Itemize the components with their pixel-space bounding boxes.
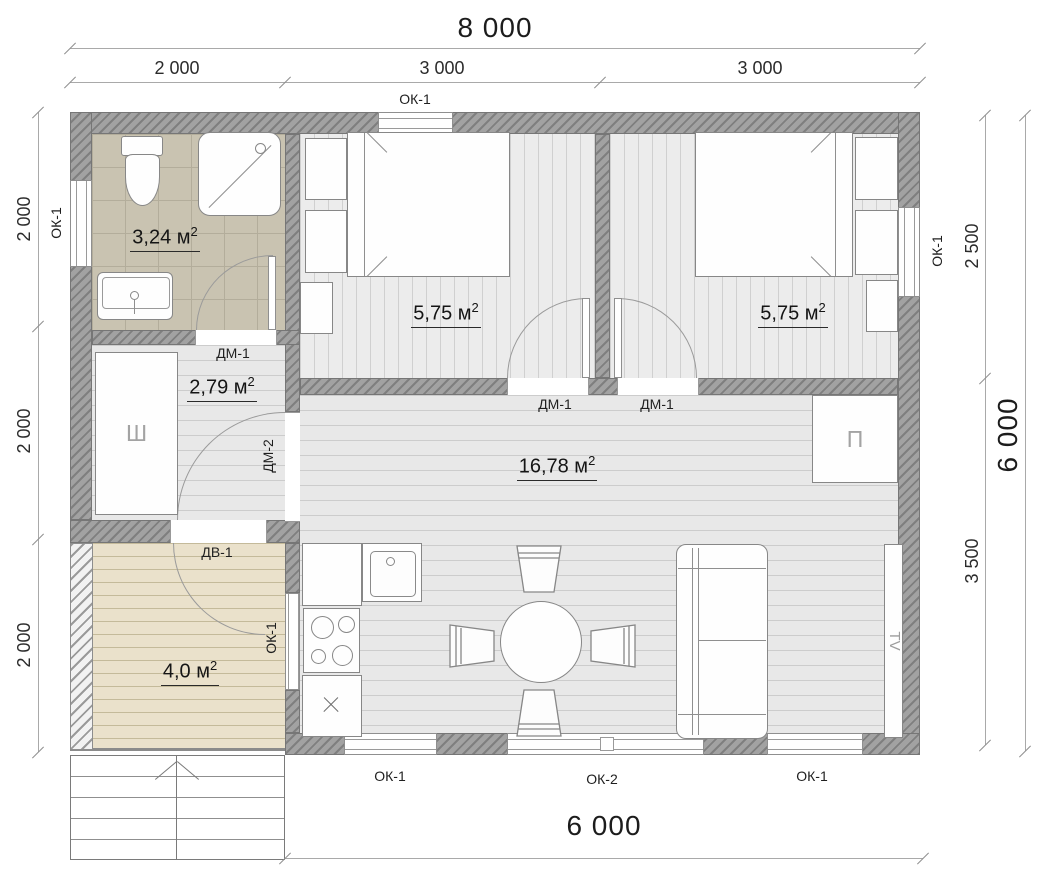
wardrobe-label: Ш [126, 420, 147, 447]
floor-plan: Ш П TV 3,24 м2 2,79 м2 5,75 м2 [0, 0, 1047, 881]
bed-1 [347, 132, 510, 277]
window-top [378, 112, 453, 134]
door-entrance-tag: ДВ-1 [187, 544, 247, 560]
bed-2 [695, 132, 853, 277]
kitchen-counter [302, 543, 362, 606]
bed-1-headboard-line [364, 133, 365, 276]
dresser-1 [300, 282, 333, 334]
dim-left-seg1: 2 000 [15, 179, 33, 259]
dim-line-right-segments [985, 115, 986, 745]
dim-line-top-segments [70, 82, 920, 83]
dim-left-seg3: 2 000 [15, 605, 33, 685]
window-left-tag: ОК-1 [47, 183, 65, 263]
toilet-tank [121, 136, 163, 156]
door-opening-hall [285, 412, 300, 522]
sofa-seat-divider [698, 640, 766, 641]
nightstand-1b [305, 210, 347, 273]
stove-burner-1 [311, 616, 334, 639]
bath-sink-faucet-stem [134, 300, 135, 314]
partition-terrace-lower [285, 690, 300, 733]
tv-label: TV [885, 601, 903, 681]
terrace-edge-line [70, 748, 285, 751]
window-pane [379, 118, 452, 129]
living-area-label: 16,78 м2 [477, 453, 637, 481]
stair-center-line [176, 756, 177, 859]
door-bathroom-tag: ДМ-1 [203, 345, 263, 361]
door-opening-bathroom [195, 330, 277, 345]
door-hall-tag: ДМ-2 [259, 416, 277, 496]
dim-line-top-total [70, 48, 920, 49]
door-leaf-bedroom1 [582, 298, 590, 378]
bath-sink-faucet [130, 291, 139, 300]
stove-burner-2 [338, 616, 355, 633]
window-right [898, 207, 920, 297]
bathroom-area-label: 3,24 м2 [85, 224, 245, 252]
window-top-tag: ОК-1 [385, 91, 445, 107]
window-bottom-center-tag: ОК-2 [572, 771, 632, 787]
door-opening-entrance [170, 520, 267, 543]
partition-living [300, 378, 898, 395]
sofa-back-line-1 [692, 548, 693, 735]
bedroom2-area-label: 5,75 м2 [713, 300, 873, 328]
cupboard-label: П [847, 426, 864, 453]
window-pane [768, 739, 862, 750]
dining-table [500, 601, 582, 683]
window-mullion [600, 737, 614, 751]
sofa-back-line-2 [698, 548, 699, 735]
window-terrace-tag: ОК-1 [262, 598, 280, 678]
dim-top-total: 8 000 [430, 12, 560, 44]
dim-line-left [38, 112, 39, 752]
window-bottom-right [767, 733, 863, 755]
window-right-tag: ОК-1 [928, 211, 946, 291]
wall-top [70, 112, 920, 134]
hall-area-label: 2,79 м2 [142, 374, 302, 402]
stove-burner-4 [332, 645, 353, 666]
dim-line-right-total [1025, 115, 1026, 751]
dim-right-seg1: 2 500 [963, 206, 981, 286]
window-bottom-left-tag: ОК-1 [360, 768, 420, 784]
bedroom1-area-label: 5,75 м2 [366, 300, 526, 328]
wall-left [70, 112, 92, 520]
stair-step-2 [71, 797, 284, 798]
dim-right-total: 6 000 [992, 375, 1024, 495]
dim-right-seg2: 3 500 [963, 521, 981, 601]
chair-bottom [514, 687, 564, 739]
nightstand-1a [305, 138, 347, 200]
window-terrace [285, 593, 300, 690]
door-leaf-bedroom2 [614, 298, 622, 378]
kitchen-sink-drain [386, 557, 395, 566]
door-bedroom2-tag: ДМ-1 [627, 396, 687, 412]
dim-top-seg3: 3 000 [725, 58, 795, 79]
nightstand-2b [855, 210, 898, 275]
partition-bedrooms [595, 134, 610, 378]
sofa [676, 544, 768, 739]
door-opening-bedroom1 [507, 378, 589, 395]
dim-line-bottom [285, 858, 923, 859]
terrace-area-label: 4,0 м2 [110, 658, 270, 686]
terrace-railing [70, 543, 93, 750]
nightstand-2a [855, 137, 898, 200]
stairs [70, 755, 285, 860]
dim-top-seg2: 3 000 [407, 58, 477, 79]
window-pane [288, 594, 299, 689]
chair-left [447, 622, 497, 670]
dim-bottom-total: 6 000 [544, 810, 664, 842]
dim-left-seg2: 2 000 [15, 391, 33, 471]
shower-head [255, 143, 266, 154]
door-leaf-bathroom [268, 256, 276, 330]
bed-2-headboard-line [835, 133, 836, 276]
window-pane [345, 739, 436, 750]
chair-right [588, 622, 638, 670]
door-opening-bedroom2 [617, 378, 699, 395]
stair-step-3 [71, 818, 284, 819]
stair-step-4 [71, 839, 284, 840]
stair-step-1 [71, 776, 284, 777]
chair-top [514, 543, 564, 595]
stove-burner-3 [311, 649, 326, 664]
window-pane [904, 208, 915, 296]
partition-main-vertical [285, 134, 300, 412]
window-bottom-right-tag: ОК-1 [782, 768, 842, 784]
door-bedroom1-tag: ДМ-1 [525, 396, 585, 412]
partition-terrace-upper [285, 543, 300, 593]
cupboard: П [812, 395, 898, 483]
dim-top-seg1: 2 000 [142, 58, 212, 79]
